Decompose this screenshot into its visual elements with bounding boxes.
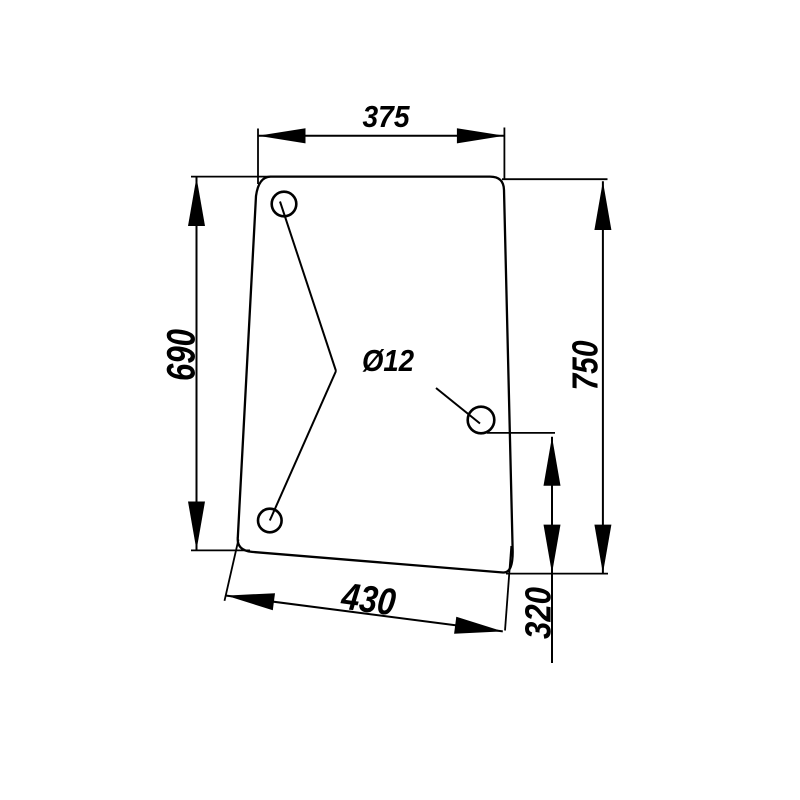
svg-text:750: 750: [565, 341, 606, 391]
svg-text:430: 430: [338, 576, 398, 625]
svg-text:320: 320: [518, 587, 559, 639]
svg-text:375: 375: [363, 99, 411, 134]
svg-text:690: 690: [160, 329, 204, 381]
svg-text:Ø12: Ø12: [362, 343, 414, 378]
